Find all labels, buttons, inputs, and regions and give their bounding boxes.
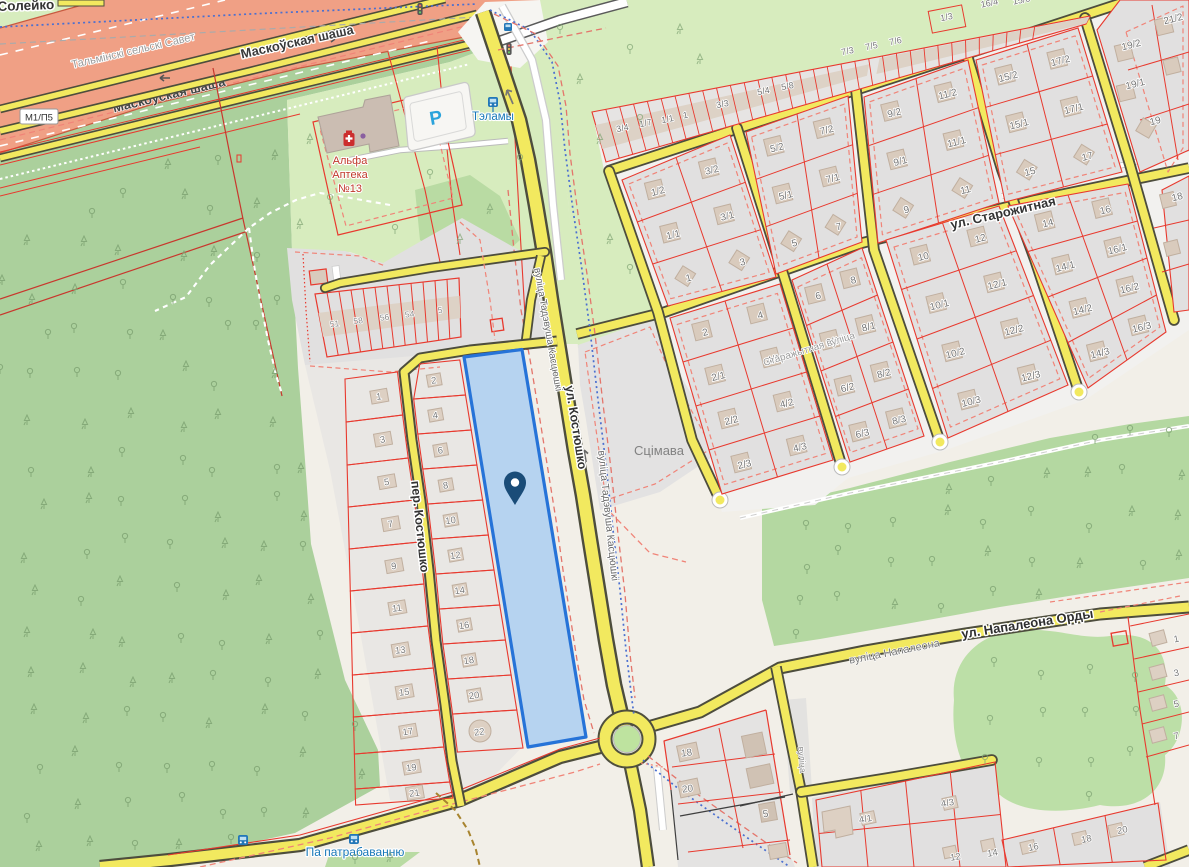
svg-text:Аптека: Аптека: [332, 169, 368, 181]
svg-text:20: 20: [1116, 824, 1129, 837]
svg-text:12: 12: [449, 550, 461, 562]
svg-text:12: 12: [949, 851, 961, 864]
svg-text:Солейко: Солейко: [0, 0, 54, 14]
svg-text:14: 14: [454, 585, 466, 597]
svg-text:18: 18: [1080, 833, 1093, 846]
svg-text:Альфа: Альфа: [333, 155, 369, 167]
svg-text:13: 13: [394, 645, 406, 657]
svg-text:М1/П5: М1/П5: [25, 113, 53, 124]
svg-text:10: 10: [445, 515, 457, 527]
svg-text:51: 51: [329, 318, 340, 329]
svg-text:15: 15: [398, 687, 410, 699]
svg-text:54: 54: [404, 308, 415, 319]
svg-text:17: 17: [402, 726, 414, 738]
svg-text:58: 58: [353, 315, 364, 326]
svg-text:4/3: 4/3: [940, 797, 955, 810]
svg-text:16: 16: [1027, 841, 1040, 854]
svg-text:Тэламы: Тэламы: [472, 111, 514, 123]
svg-text:14: 14: [986, 847, 998, 860]
svg-text:20: 20: [468, 690, 480, 702]
svg-text:19: 19: [405, 762, 417, 774]
svg-text:Сцімава: Сцімава: [634, 443, 685, 458]
svg-text:56: 56: [379, 312, 390, 323]
svg-text:11: 11: [391, 603, 402, 615]
svg-text:4/1: 4/1: [858, 813, 873, 826]
svg-text:20: 20: [681, 783, 694, 796]
svg-text:№13: №13: [338, 183, 362, 195]
svg-text:21: 21: [409, 788, 421, 800]
svg-text:16: 16: [458, 620, 470, 632]
svg-text:вуліца: вуліца: [796, 746, 808, 773]
svg-text:18: 18: [680, 747, 693, 760]
svg-text:22: 22: [473, 726, 485, 738]
svg-text:18: 18: [463, 655, 475, 667]
